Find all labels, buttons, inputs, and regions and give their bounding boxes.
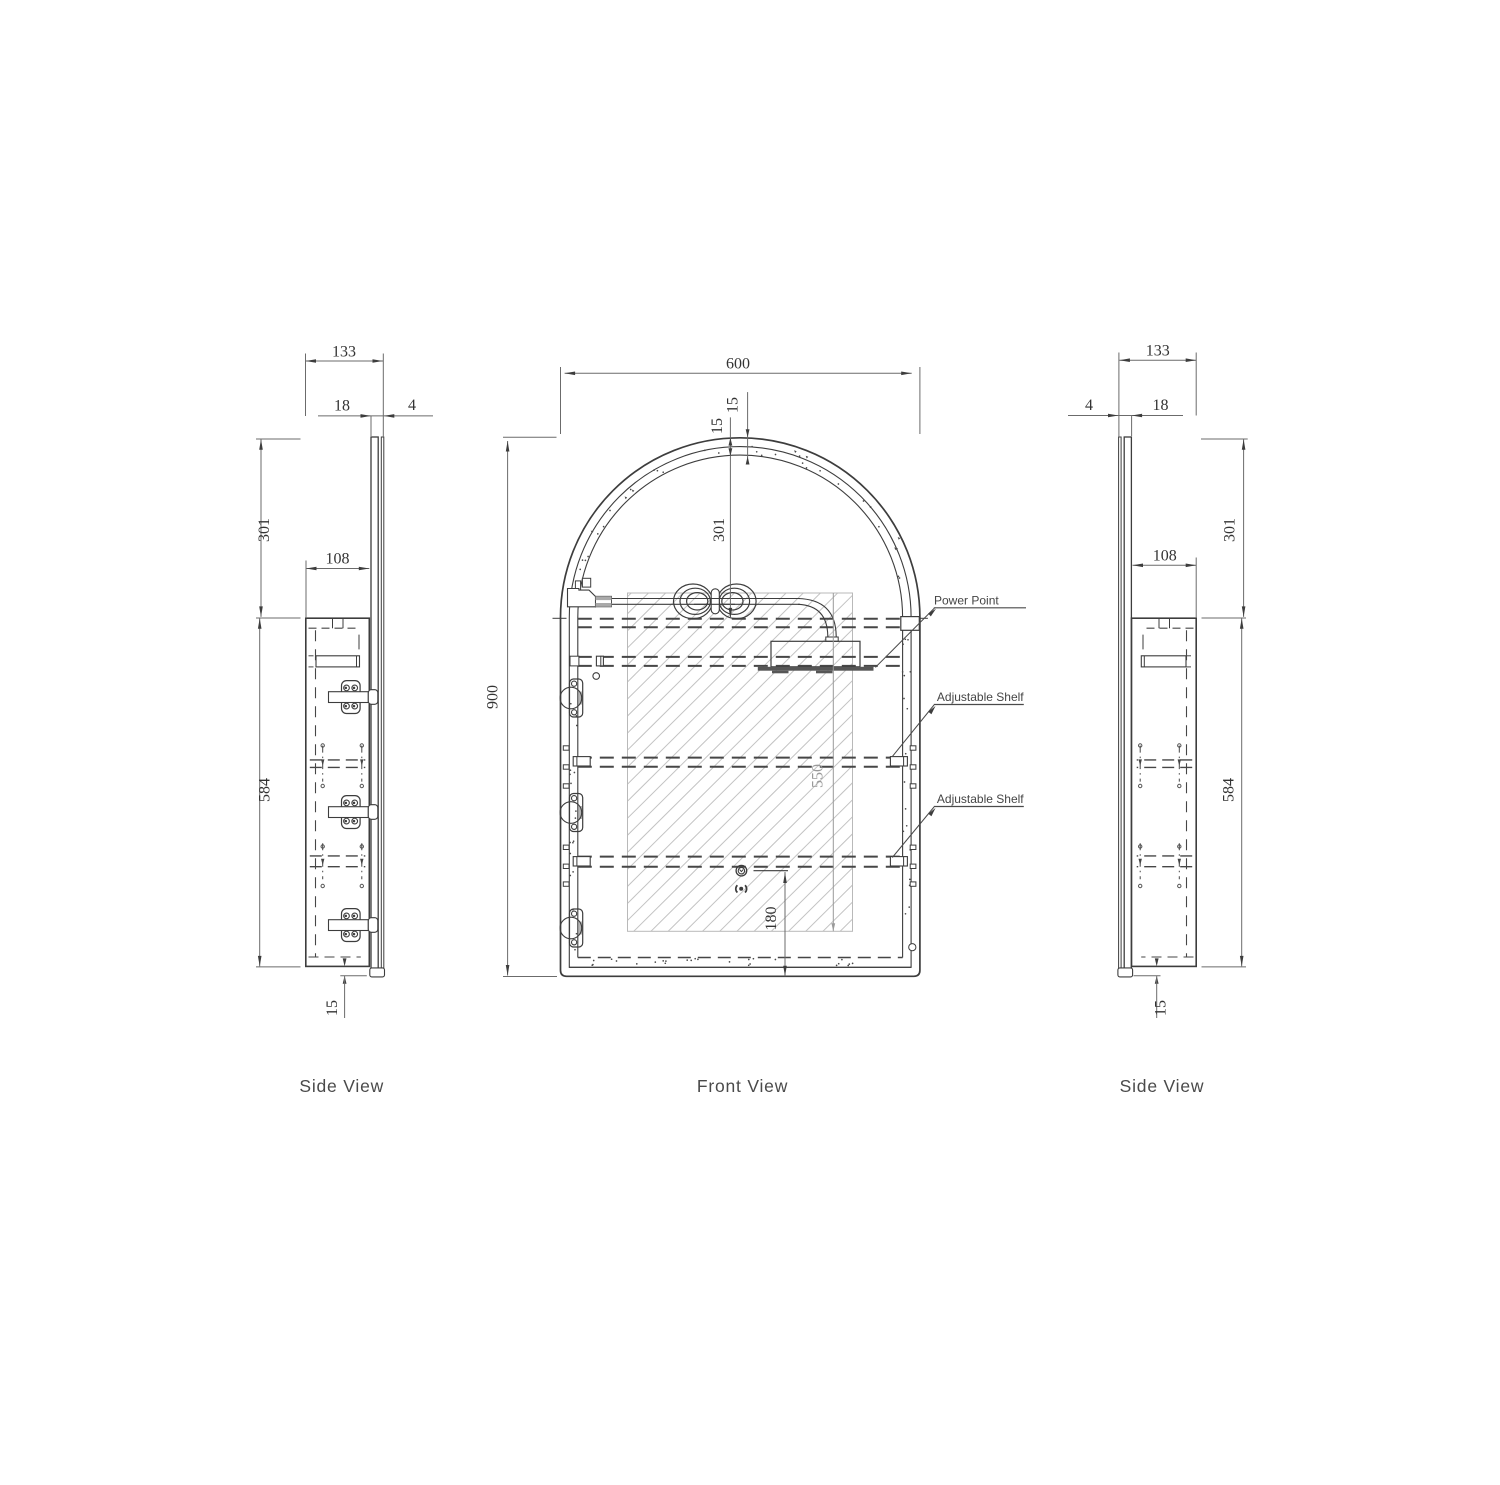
- svg-text:133: 133: [332, 344, 356, 361]
- svg-text:550: 550: [810, 764, 827, 788]
- svg-text:15: 15: [324, 1000, 341, 1016]
- svg-text:15: 15: [1153, 1000, 1170, 1016]
- svg-text:Side View: Side View: [1120, 1076, 1205, 1096]
- svg-text:15: 15: [724, 397, 741, 413]
- svg-text:900: 900: [485, 685, 502, 709]
- svg-text:301: 301: [711, 518, 728, 542]
- svg-text:4: 4: [1085, 397, 1093, 414]
- svg-text:180: 180: [763, 907, 780, 931]
- svg-text:108: 108: [326, 551, 350, 568]
- svg-text:4: 4: [408, 397, 416, 414]
- svg-text:15: 15: [709, 418, 726, 434]
- svg-text:301: 301: [256, 518, 273, 542]
- svg-text:584: 584: [1221, 778, 1238, 802]
- svg-text:Adjustable Shelf: Adjustable Shelf: [937, 792, 1024, 806]
- svg-text:18: 18: [334, 398, 350, 415]
- svg-text:133: 133: [1146, 343, 1170, 360]
- svg-text:Front View: Front View: [697, 1076, 788, 1096]
- svg-text:584: 584: [257, 778, 274, 802]
- svg-text:301: 301: [1222, 518, 1239, 542]
- svg-text:18: 18: [1153, 397, 1169, 414]
- svg-text:600: 600: [726, 356, 750, 373]
- svg-text:Power Point: Power Point: [934, 594, 999, 608]
- svg-text:Adjustable Shelf: Adjustable Shelf: [937, 690, 1024, 704]
- svg-text:Side View: Side View: [299, 1076, 384, 1096]
- svg-text:108: 108: [1153, 548, 1177, 565]
